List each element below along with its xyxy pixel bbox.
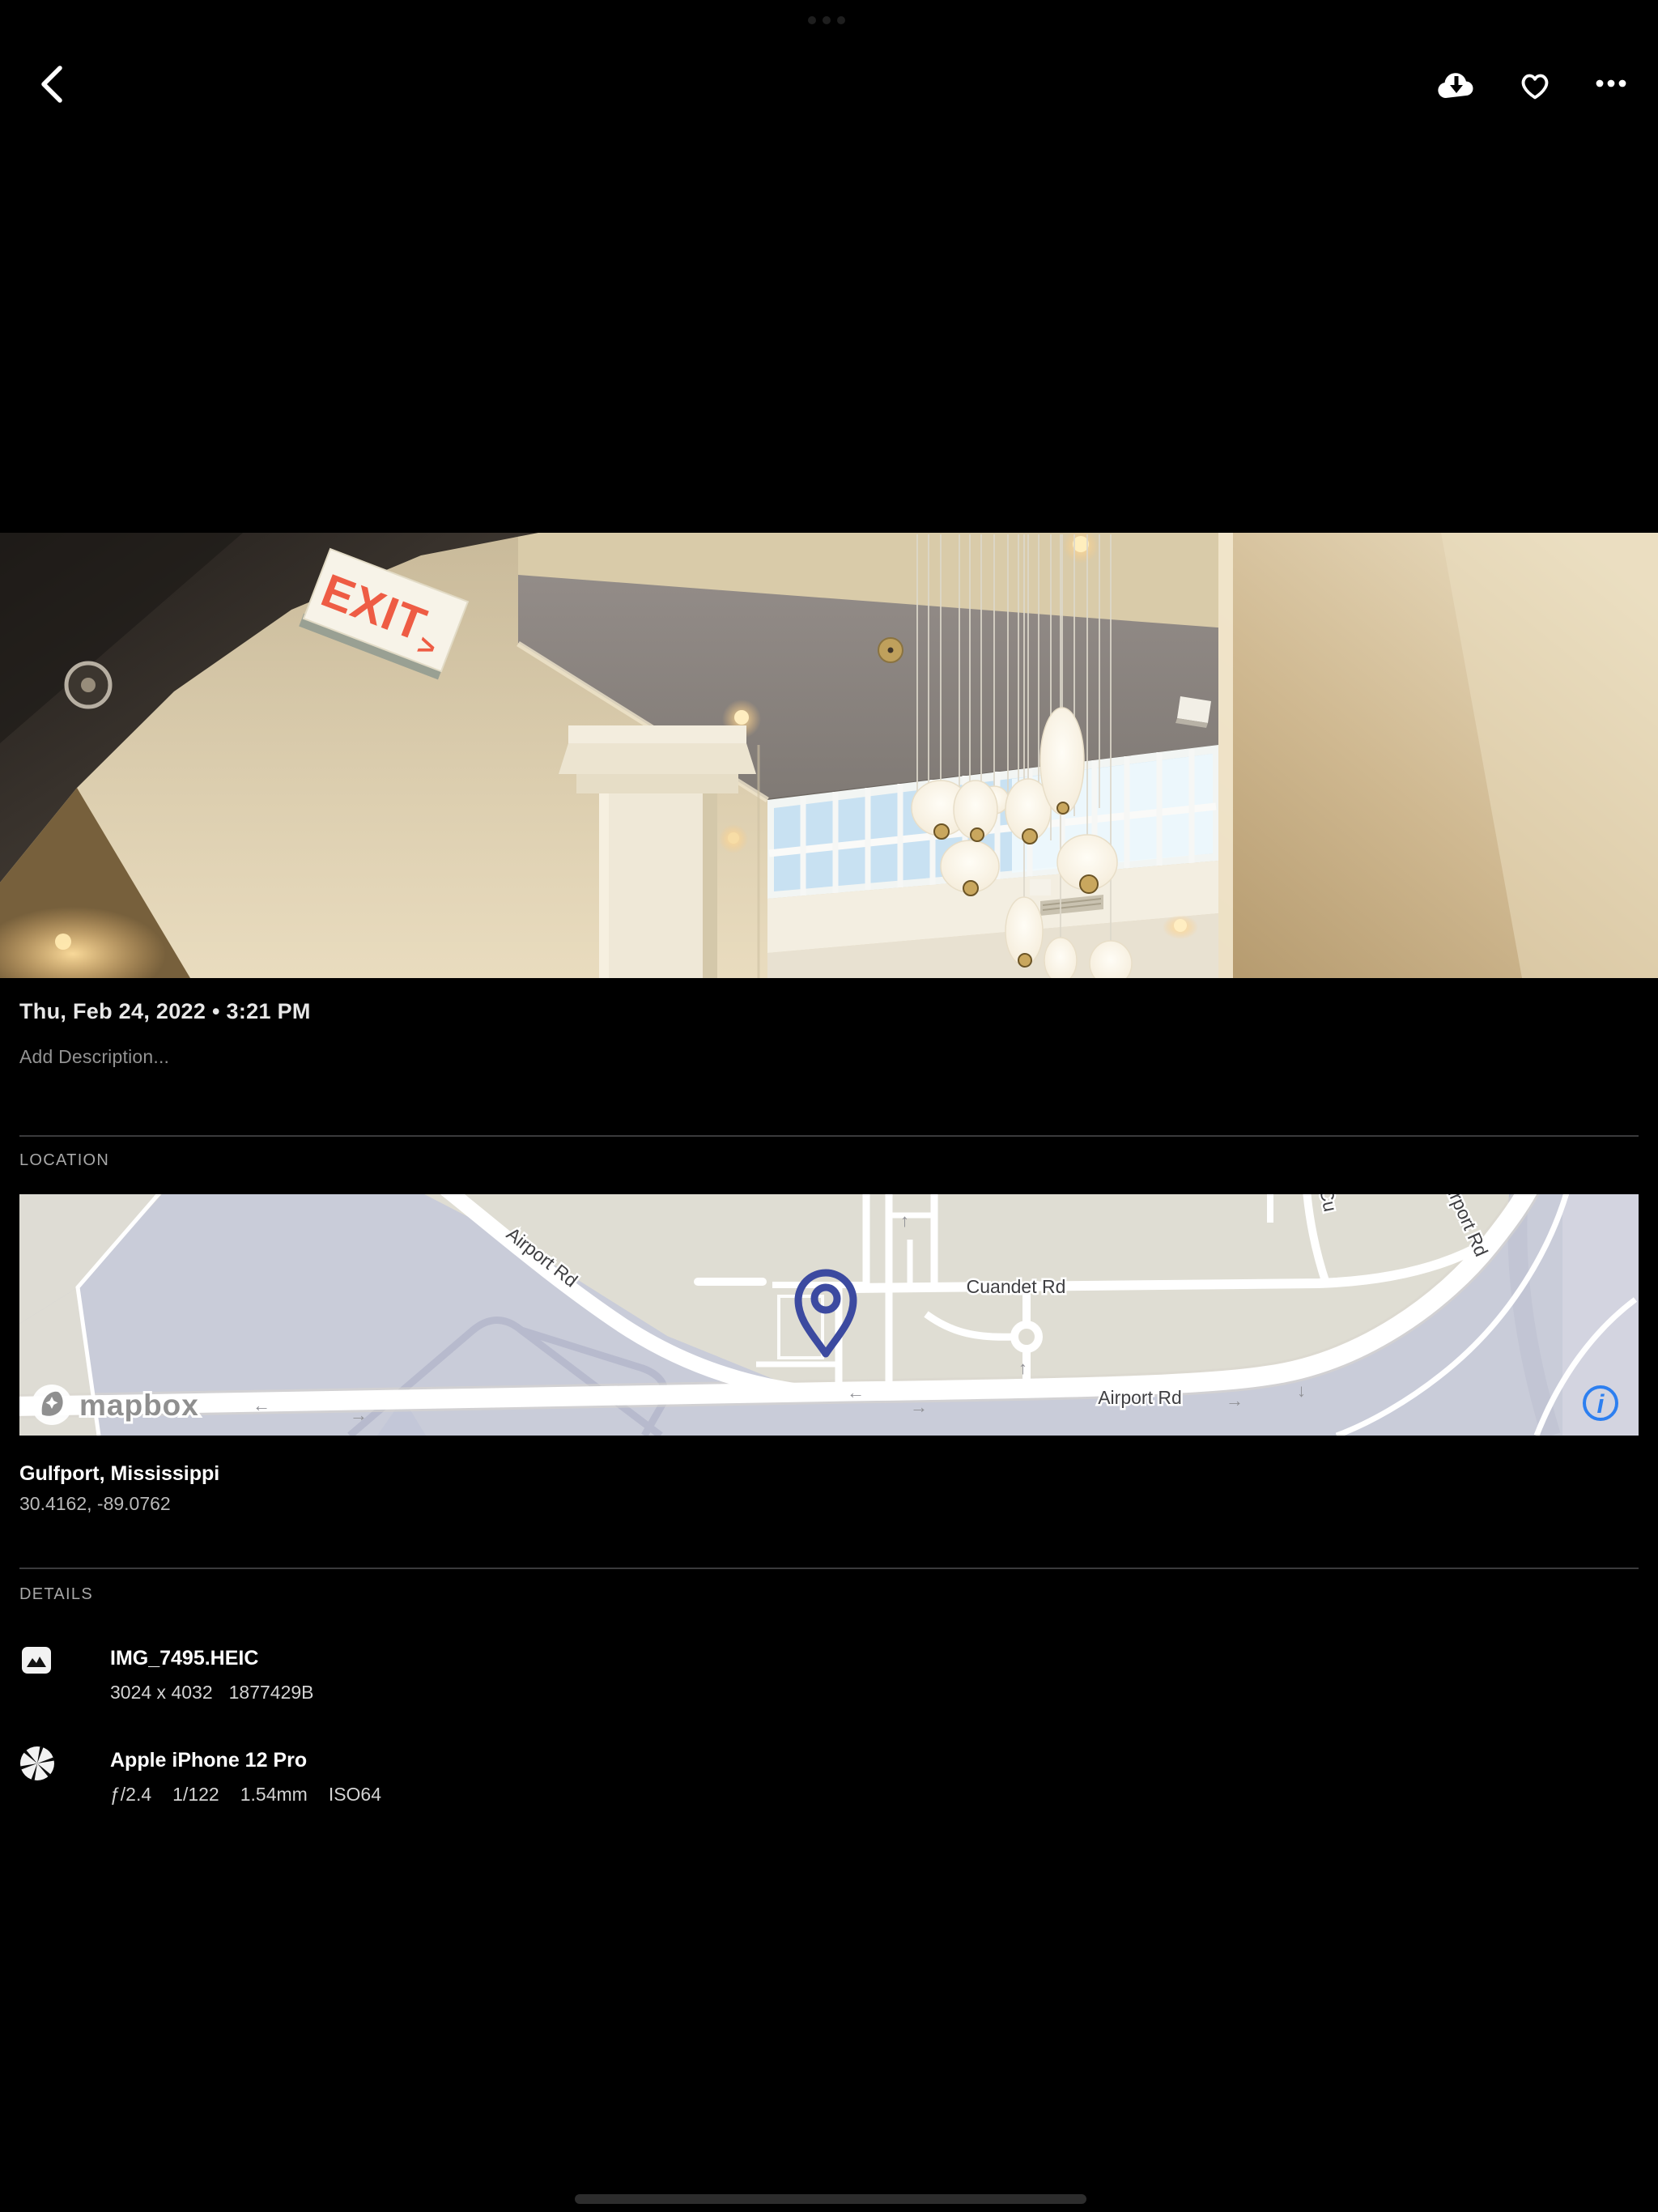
file-dimensions: 3024 x 4032	[110, 1682, 213, 1703]
back-button[interactable]	[36, 63, 68, 105]
road-label-airport-rd-horizontal: Airport Rd	[1098, 1387, 1182, 1408]
road-arrow-icon: ←	[847, 1382, 865, 1402]
location-place: Gulfport, Mississippi	[19, 1462, 219, 1486]
road-arrow-icon: ↑	[900, 1210, 909, 1231]
camera-meta: ƒ/2.41/1221.54mmISO64	[110, 1784, 402, 1806]
more-options-button[interactable]	[1595, 78, 1627, 89]
camera-aperture: ƒ/2.4	[110, 1784, 151, 1805]
road-arrow-icon: ←	[253, 1395, 270, 1415]
road-arrow-icon: →	[1226, 1390, 1243, 1410]
mapbox-attribution[interactable]: mapbox	[32, 1385, 199, 1425]
location-section-header: LOCATION	[19, 1151, 109, 1170]
camera-focal-length: 1.54mm	[240, 1784, 308, 1805]
image-icon	[21, 1645, 52, 1676]
road-arrow-icon: ↓	[1297, 1380, 1306, 1401]
divider	[19, 1568, 1639, 1569]
file-meta: 3024 x 40321877429B	[110, 1682, 330, 1704]
mapbox-wordmark: mapbox	[79, 1389, 199, 1422]
road-arrow-icon: →	[910, 1397, 928, 1417]
heart-icon	[1519, 70, 1551, 102]
location-map[interactable]: ← → ← → → ↓ ↑ ↑ Airport Rd Cuandet Rd Ai…	[19, 1194, 1639, 1436]
road-label-cuandet-rd: Cuandet Rd	[967, 1276, 1066, 1297]
location-coordinates: 30.4162, -89.0762	[19, 1493, 171, 1515]
photo-datetime: Thu, Feb 24, 2022 • 3:21 PM	[19, 999, 311, 1024]
chevron-left-icon	[36, 63, 68, 105]
camera-model: Apple iPhone 12 Pro	[110, 1749, 307, 1772]
description-input[interactable]: Add Description...	[19, 1046, 169, 1068]
photo-image[interactable]: EXIT >	[0, 533, 1658, 978]
camera-shutter: 1/122	[172, 1784, 219, 1805]
aperture-icon	[19, 1746, 55, 1781]
details-section-header: DETAILS	[19, 1585, 93, 1604]
multitask-indicator-icon[interactable]	[808, 16, 850, 26]
file-name: IMG_7495.HEIC	[110, 1647, 258, 1670]
ellipsis-icon	[1595, 78, 1627, 89]
download-button[interactable]	[1438, 71, 1475, 100]
camera-iso: ISO64	[329, 1784, 381, 1805]
home-indicator[interactable]	[575, 2194, 1086, 2204]
road-arrow-icon: →	[350, 1405, 368, 1425]
cloud-download-icon	[1438, 71, 1475, 100]
road-arrow-icon: ↑	[1018, 1358, 1027, 1378]
favorite-button[interactable]	[1519, 70, 1551, 102]
info-icon: i	[1597, 1389, 1605, 1419]
divider	[19, 1135, 1639, 1137]
file-size: 1877429B	[229, 1682, 314, 1703]
